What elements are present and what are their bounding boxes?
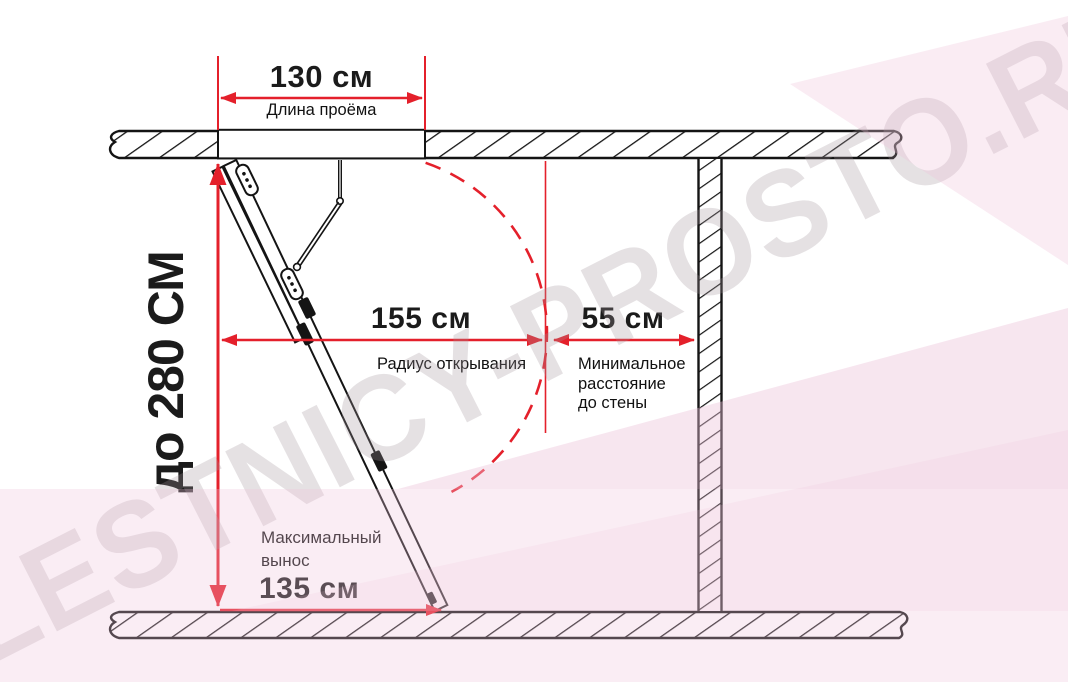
max-extension-value: 135 см xyxy=(259,572,359,606)
attic-ladder-diagram: 130 см Длина проёма до 280 СМ 155 см Рад… xyxy=(0,0,1068,682)
max-extension-label-line1: Максимальный xyxy=(261,526,381,549)
opening-length-label: Длина проёма xyxy=(218,101,425,120)
spring-strut xyxy=(294,160,344,270)
max-extension-label-line2: вынос xyxy=(261,549,381,572)
wall-distance-label: Минимальное расстояние до стены xyxy=(578,355,686,414)
opening-length-value: 130 см xyxy=(218,59,425,95)
wall-distance-label-line2: расстояние xyxy=(578,375,686,395)
ceiling-opening xyxy=(218,130,425,159)
opening-radius-value: 155 см xyxy=(371,302,471,336)
floor-slab xyxy=(110,612,907,638)
opening-radius-label: Радиус открывания xyxy=(377,355,526,374)
wall-distance-value: 55 см xyxy=(581,302,664,336)
max-extension-label: Максимальный вынос xyxy=(261,526,381,572)
hatch-door-panel xyxy=(213,167,306,343)
wall-distance-label-line1: Минимальное xyxy=(578,355,686,375)
wall-distance-label-line3: до стены xyxy=(578,394,686,414)
ceiling-height-value: до 280 СМ xyxy=(137,251,195,493)
wall-column xyxy=(699,158,722,612)
ceiling-slab xyxy=(110,130,901,159)
